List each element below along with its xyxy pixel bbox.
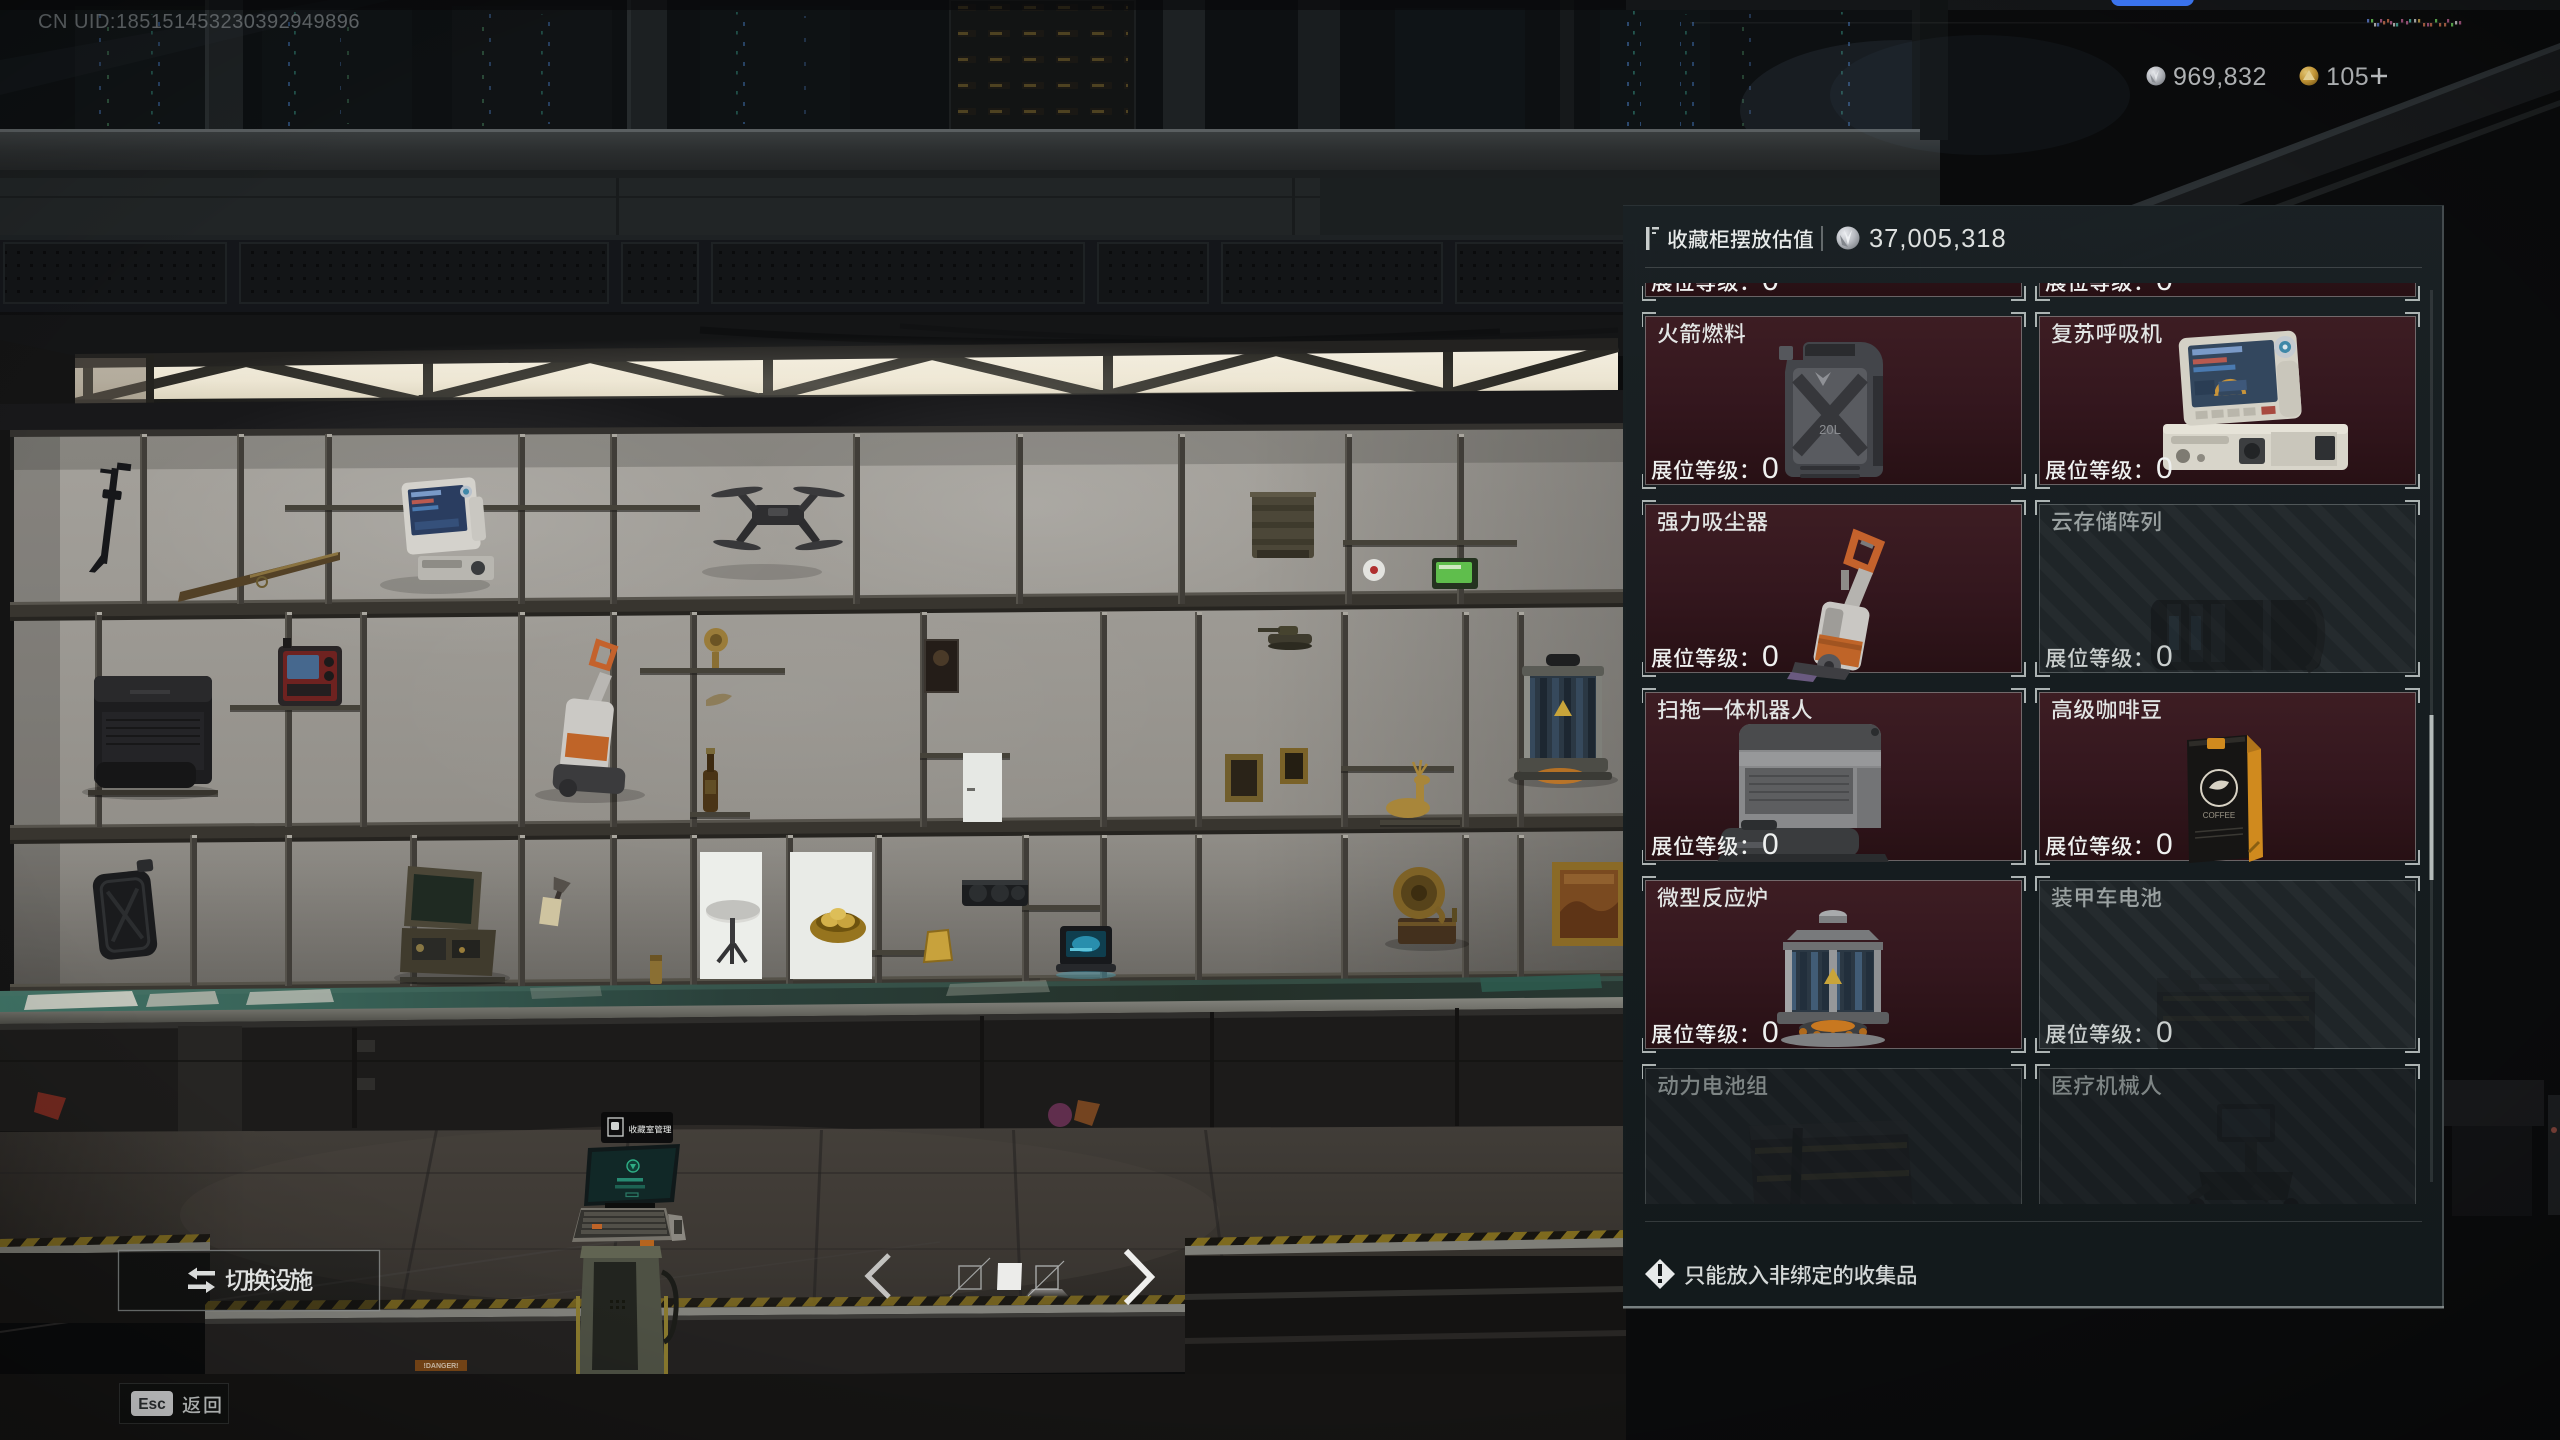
svg-text:0: 0 <box>1762 1016 1779 1049</box>
svg-text:0: 0 <box>2156 828 2173 861</box>
svg-text:COFFEE: COFFEE <box>2203 811 2235 820</box>
svg-text:0: 0 <box>2156 452 2173 485</box>
svg-text:0: 0 <box>1762 452 1779 485</box>
svg-text:20L: 20L <box>1819 422 1841 437</box>
svg-text:0: 0 <box>2156 1016 2173 1049</box>
svg-text:0: 0 <box>2156 640 2173 673</box>
svg-text:0: 0 <box>1762 828 1779 861</box>
svg-text:0: 0 <box>1762 640 1779 673</box>
svg-text:37,005,318: 37,005,318 <box>1869 225 2007 253</box>
